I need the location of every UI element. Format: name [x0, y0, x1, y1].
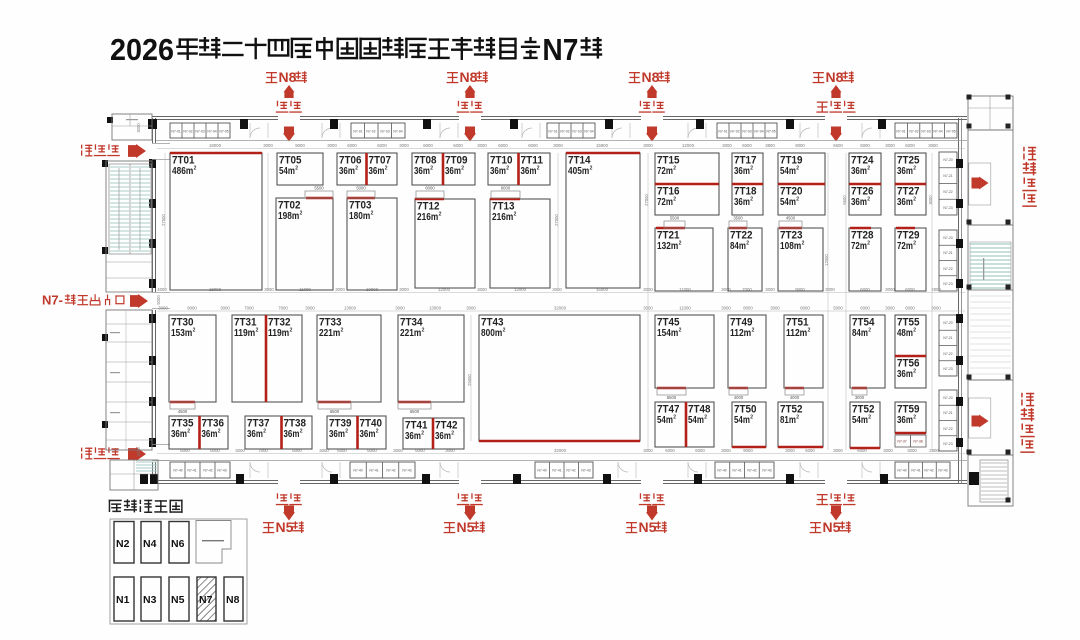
svg-text:3500: 3500: [733, 216, 743, 221]
svg-text:15900: 15900: [596, 143, 609, 148]
svg-text:36m: 36m: [734, 165, 750, 177]
svg-text:7000: 7000: [244, 306, 254, 311]
svg-text:6000: 6000: [423, 143, 433, 148]
svg-text:5000: 5000: [356, 186, 366, 191]
svg-text:N7-05: N7-05: [766, 130, 775, 134]
svg-text:N7-41: N7-41: [732, 469, 741, 473]
svg-text:3000: 3000: [883, 448, 893, 453]
svg-text:54m: 54m: [688, 414, 704, 426]
svg-text:2: 2: [796, 197, 799, 203]
svg-text:N7-41: N7-41: [552, 469, 561, 473]
svg-text:54m: 54m: [780, 165, 796, 177]
svg-text:2: 2: [796, 166, 799, 172]
svg-text:N7-04: N7-04: [207, 130, 216, 134]
svg-text:9000: 9000: [295, 143, 305, 148]
svg-text:6000: 6000: [347, 143, 357, 148]
svg-text:N7-23: N7-23: [943, 206, 952, 210]
svg-text:4000: 4000: [157, 287, 167, 292]
svg-text:3000: 3000: [885, 287, 895, 292]
svg-text:7000: 7000: [278, 306, 288, 311]
svg-text:2: 2: [263, 429, 266, 435]
svg-text:3000: 3000: [553, 143, 563, 148]
svg-text:5500: 5500: [314, 186, 324, 191]
svg-text:4000: 4000: [734, 395, 744, 400]
svg-text:36m: 36m: [445, 165, 461, 177]
svg-text:N7-42: N7-42: [924, 469, 933, 473]
svg-text:3000: 3000: [643, 448, 653, 453]
svg-text:2: 2: [218, 429, 221, 435]
svg-text:36m: 36m: [369, 165, 385, 177]
svg-text:2800: 2800: [929, 448, 939, 453]
svg-text:N7-04: N7-04: [393, 130, 402, 134]
svg-text:3000: 3000: [785, 448, 795, 453]
svg-text:12000: 12000: [824, 254, 829, 266]
svg-text:800m: 800m: [481, 327, 502, 339]
svg-text:36m: 36m: [247, 428, 263, 440]
svg-text:N7-23: N7-23: [943, 367, 952, 371]
svg-text:2: 2: [590, 166, 593, 172]
svg-text:36m: 36m: [851, 165, 867, 177]
svg-text:18000: 18000: [209, 143, 222, 148]
svg-text:3000: 3000: [235, 448, 245, 453]
svg-text:N7-21: N7-21: [943, 251, 952, 255]
svg-text:2: 2: [868, 328, 871, 334]
svg-text:3000: 3000: [477, 287, 487, 292]
svg-text:154m: 154m: [657, 327, 678, 339]
svg-text:3000: 3000: [477, 143, 487, 148]
svg-text:3000: 3000: [158, 306, 168, 311]
svg-text:84m: 84m: [852, 327, 868, 339]
svg-text:180m: 180m: [349, 210, 370, 222]
svg-text:3000: 3000: [833, 448, 843, 453]
svg-text:2: 2: [506, 166, 509, 172]
svg-text:N7-02: N7-02: [366, 130, 375, 134]
svg-text:6000: 6000: [425, 186, 435, 191]
svg-text:3000: 3000: [765, 287, 775, 292]
svg-text:2: 2: [673, 415, 676, 421]
svg-text:36m: 36m: [329, 428, 345, 440]
svg-text:13000: 13000: [344, 306, 357, 311]
svg-text:6000: 6000: [905, 143, 915, 148]
svg-text:N7-03: N7-03: [921, 130, 930, 134]
svg-text:6600: 6600: [833, 143, 843, 148]
svg-text:2026: 2026: [110, 32, 174, 67]
svg-text:2: 2: [256, 328, 259, 334]
svg-text:2: 2: [187, 429, 190, 435]
svg-text:N5: N5: [823, 519, 841, 535]
svg-text:36m: 36m: [435, 430, 451, 442]
svg-text:216m: 216m: [417, 211, 438, 223]
svg-text:36m: 36m: [851, 196, 867, 208]
svg-text:6000: 6000: [498, 143, 508, 148]
svg-text:3000: 3000: [327, 143, 337, 148]
svg-text:221m: 221m: [400, 327, 421, 339]
svg-text:54m: 54m: [279, 165, 295, 177]
svg-text:N4: N4: [143, 538, 157, 550]
svg-text:N7-43: N7-43: [762, 469, 771, 473]
svg-text:N8: N8: [642, 69, 660, 85]
svg-text:2: 2: [345, 429, 348, 435]
svg-text:32000: 32000: [554, 448, 567, 453]
svg-text:9000: 9000: [187, 306, 197, 311]
svg-text:5000: 5000: [156, 295, 161, 305]
svg-text:8000: 8000: [800, 306, 810, 311]
svg-text:N7-20: N7-20: [943, 321, 952, 325]
svg-text:11000: 11000: [679, 306, 691, 311]
svg-text:N5: N5: [171, 594, 185, 606]
svg-text:N7-42: N7-42: [747, 469, 756, 473]
svg-text:112m: 112m: [730, 327, 751, 339]
svg-text:3000: 3000: [552, 287, 562, 292]
svg-text:6000: 6000: [742, 143, 752, 148]
svg-text:N7-41: N7-41: [369, 469, 378, 473]
svg-text:N7: N7: [542, 32, 578, 67]
svg-text:N8: N8: [826, 69, 844, 85]
svg-text:112m: 112m: [786, 327, 807, 339]
svg-text:N7-40: N7-40: [173, 469, 182, 473]
svg-text:2: 2: [295, 166, 298, 172]
svg-text:N7-04: N7-04: [933, 130, 942, 134]
svg-text:221m: 221m: [319, 327, 340, 339]
svg-text:6000: 6000: [665, 448, 675, 453]
svg-text:2: 2: [355, 166, 358, 172]
svg-text:N7-42: N7-42: [386, 469, 395, 473]
svg-text:2: 2: [385, 166, 388, 172]
svg-text:9000: 9000: [795, 143, 805, 148]
svg-text:N7-01: N7-01: [171, 130, 180, 134]
svg-text:36m: 36m: [897, 414, 913, 426]
svg-text:3000: 3000: [928, 143, 938, 148]
svg-text:2: 2: [371, 211, 374, 217]
svg-text:6000: 6000: [528, 143, 538, 148]
svg-text:N7-05: N7-05: [219, 130, 228, 134]
svg-text:3000: 3000: [928, 195, 933, 205]
svg-text:N7-03: N7-03: [195, 130, 204, 134]
svg-text:72m: 72m: [657, 165, 673, 177]
svg-text:153m: 153m: [171, 327, 192, 339]
svg-text:N7-01: N7-01: [896, 130, 905, 134]
svg-text:4500: 4500: [178, 409, 188, 414]
svg-text:N7-41: N7-41: [187, 469, 196, 473]
svg-text:N7-22: N7-22: [943, 352, 952, 356]
svg-text:2: 2: [673, 197, 676, 203]
svg-text:N5: N5: [457, 519, 475, 535]
svg-text:9000: 9000: [743, 448, 753, 453]
svg-text:N7-04: N7-04: [754, 130, 763, 134]
svg-text:N7-42: N7-42: [566, 469, 575, 473]
svg-text:54m: 54m: [734, 414, 750, 426]
svg-text:2: 2: [913, 197, 916, 203]
svg-text:N8: N8: [279, 69, 297, 85]
svg-text:N7: N7: [199, 594, 213, 606]
svg-text:N7-: N7-: [42, 292, 63, 307]
svg-text:6500: 6500: [330, 409, 340, 414]
svg-text:3000: 3000: [722, 143, 732, 148]
svg-text:2: 2: [796, 415, 799, 421]
svg-text:8000: 8000: [743, 306, 753, 311]
svg-text:36m: 36m: [734, 196, 750, 208]
svg-text:2: 2: [430, 166, 433, 172]
svg-text:3000: 3000: [393, 448, 403, 453]
svg-text:36m: 36m: [202, 428, 218, 440]
svg-text:N7-03: N7-03: [572, 130, 581, 134]
svg-text:48m: 48m: [897, 327, 913, 339]
svg-text:108m: 108m: [780, 240, 801, 252]
svg-text:3000: 3000: [399, 143, 409, 148]
svg-text:N7-01: N7-01: [353, 130, 362, 134]
svg-text:N7-40: N7-40: [537, 469, 546, 473]
svg-text:12000: 12000: [682, 143, 695, 148]
svg-text:N7-02: N7-02: [730, 130, 739, 134]
svg-text:2: 2: [300, 211, 303, 217]
svg-text:N2: N2: [116, 538, 130, 550]
svg-text:3000: 3000: [399, 287, 409, 292]
svg-text:25000: 25000: [467, 374, 472, 386]
svg-text:36m: 36m: [171, 428, 187, 440]
svg-text:N7-40: N7-40: [717, 469, 726, 473]
svg-text:2: 2: [704, 415, 707, 421]
svg-text:N7-22: N7-22: [943, 427, 952, 431]
svg-text:216m: 216m: [492, 211, 513, 223]
svg-text:N7-38: N7-38: [913, 440, 922, 444]
svg-text:3000: 3000: [885, 143, 895, 148]
svg-text:N7-20: N7-20: [943, 236, 952, 240]
svg-text:N7-01: N7-01: [548, 130, 557, 134]
svg-text:2: 2: [439, 212, 442, 218]
svg-text:2: 2: [503, 328, 506, 334]
svg-text:119m: 119m: [268, 327, 289, 339]
svg-text:4000: 4000: [790, 395, 800, 400]
svg-text:3000: 3000: [305, 306, 315, 311]
svg-text:2: 2: [750, 415, 753, 421]
svg-text:N5: N5: [639, 519, 657, 535]
svg-text:2: 2: [750, 197, 753, 203]
svg-text:2: 2: [376, 429, 379, 435]
svg-text:2: 2: [913, 415, 916, 421]
svg-text:2: 2: [679, 241, 682, 247]
svg-text:36m: 36m: [897, 196, 913, 208]
svg-text:36m: 36m: [490, 165, 506, 177]
svg-text:N7-23: N7-23: [943, 442, 952, 446]
svg-text:N7-21: N7-21: [943, 411, 952, 415]
svg-text:3000: 3000: [643, 306, 653, 311]
svg-text:36m: 36m: [360, 428, 376, 440]
svg-text:36m: 36m: [414, 165, 430, 177]
svg-text:54m: 54m: [780, 196, 796, 208]
svg-text:N7-02: N7-02: [909, 130, 918, 134]
svg-text:2: 2: [752, 328, 755, 334]
svg-text:2: 2: [808, 328, 811, 334]
svg-text:13000: 13000: [429, 306, 442, 311]
svg-text:3000: 3000: [466, 306, 476, 311]
svg-text:36m: 36m: [339, 165, 355, 177]
svg-text:2: 2: [913, 328, 916, 334]
svg-text:N7-01: N7-01: [718, 130, 727, 134]
svg-text:6600: 6600: [842, 195, 847, 205]
svg-text:72m: 72m: [897, 240, 913, 252]
svg-text:3000: 3000: [721, 448, 731, 453]
svg-text:N7-23: N7-23: [943, 282, 952, 286]
svg-text:N5: N5: [276, 519, 294, 535]
svg-text:2: 2: [300, 429, 303, 435]
svg-text:N7-43: N7-43: [402, 469, 411, 473]
svg-text:2: 2: [537, 166, 540, 172]
svg-text:2: 2: [802, 241, 805, 247]
svg-text:132m: 132m: [657, 240, 678, 252]
svg-text:6000: 6000: [905, 306, 915, 311]
svg-text:6000: 6000: [860, 143, 870, 148]
svg-text:27000: 27000: [161, 214, 166, 226]
svg-text:54m: 54m: [657, 414, 673, 426]
svg-text:3000: 3000: [220, 306, 230, 311]
svg-text:36m: 36m: [897, 368, 913, 380]
svg-text:2: 2: [193, 328, 196, 334]
svg-text:N7-40: N7-40: [897, 469, 906, 473]
svg-text:36m: 36m: [284, 428, 300, 440]
svg-text:32000: 32000: [554, 306, 567, 311]
svg-text:3000: 3000: [264, 287, 274, 292]
svg-text:6000: 6000: [805, 448, 815, 453]
svg-text:6000: 6000: [860, 306, 870, 311]
svg-text:6000: 6000: [453, 143, 463, 148]
svg-text:119m: 119m: [234, 327, 255, 339]
svg-text:3000: 3000: [770, 306, 780, 311]
svg-text:2: 2: [514, 212, 517, 218]
svg-text:N7-21: N7-21: [943, 336, 952, 340]
svg-text:N7-03: N7-03: [380, 130, 389, 134]
svg-text:3000: 3000: [931, 306, 941, 311]
svg-text:3000: 3000: [136, 123, 141, 133]
svg-text:72m: 72m: [657, 196, 673, 208]
svg-text:36m: 36m: [897, 165, 913, 177]
svg-text:N7-21: N7-21: [943, 174, 952, 178]
svg-text:2: 2: [913, 241, 916, 247]
svg-text:5500: 5500: [667, 395, 677, 400]
svg-text:54m: 54m: [852, 414, 868, 426]
svg-text:27000: 27000: [554, 214, 559, 226]
svg-text:2: 2: [451, 431, 454, 437]
svg-text:27000: 27000: [644, 194, 649, 206]
svg-text:6000: 6000: [501, 186, 511, 191]
svg-text:3000: 3000: [643, 287, 653, 292]
svg-text:486m: 486m: [172, 165, 193, 177]
svg-text:N7-04: N7-04: [584, 130, 593, 134]
svg-text:2: 2: [913, 166, 916, 172]
svg-text:2: 2: [746, 241, 749, 247]
svg-text:N7-22: N7-22: [943, 190, 952, 194]
svg-text:N7-20: N7-20: [943, 158, 952, 162]
svg-text:N7-02: N7-02: [560, 130, 569, 134]
svg-text:2800: 2800: [931, 287, 941, 292]
svg-text:N7-02: N7-02: [183, 130, 192, 134]
svg-text:6000: 6000: [695, 448, 705, 453]
svg-text:2: 2: [194, 166, 197, 172]
svg-text:405m: 405m: [568, 165, 589, 177]
svg-text:N7-22: N7-22: [943, 267, 952, 271]
svg-text:N7-43: N7-43: [938, 469, 947, 473]
svg-text:N7-05: N7-05: [946, 130, 955, 134]
svg-text:3800: 3800: [765, 143, 775, 148]
svg-text:2: 2: [461, 166, 464, 172]
svg-text:N7-03: N7-03: [742, 130, 751, 134]
svg-text:6000: 6000: [377, 143, 387, 148]
svg-text:3000: 3000: [825, 287, 835, 292]
svg-text:3000: 3000: [395, 306, 405, 311]
svg-text:N3: N3: [143, 594, 157, 606]
svg-text:2: 2: [750, 166, 753, 172]
svg-text:N6: N6: [171, 538, 185, 550]
svg-text:6500: 6500: [410, 409, 420, 414]
svg-text:N7-41: N7-41: [911, 469, 920, 473]
svg-text:3000: 3000: [643, 143, 653, 148]
svg-text:84m: 84m: [730, 240, 746, 252]
svg-text:3000: 3000: [907, 448, 917, 453]
svg-text:2: 2: [913, 369, 916, 375]
svg-text:5500: 5500: [670, 216, 680, 221]
svg-text:N7-42: N7-42: [203, 469, 212, 473]
svg-text:3000: 3000: [136, 447, 141, 457]
svg-text:N7-37: N7-37: [897, 440, 906, 444]
svg-text:3000: 3000: [263, 143, 273, 148]
svg-text:2: 2: [421, 431, 424, 437]
svg-text:N7-43: N7-43: [217, 469, 226, 473]
svg-text:2: 2: [868, 415, 871, 421]
svg-text:198m: 198m: [278, 210, 299, 222]
svg-text:2: 2: [422, 328, 425, 334]
svg-text:2: 2: [867, 166, 870, 172]
svg-text:3000: 3000: [855, 395, 865, 400]
svg-text:2: 2: [341, 328, 344, 334]
svg-text:36m: 36m: [521, 165, 537, 177]
svg-text:4500: 4500: [786, 216, 796, 221]
svg-text:2: 2: [673, 166, 676, 172]
svg-text:2: 2: [867, 197, 870, 203]
svg-text:N7-20: N7-20: [943, 396, 952, 400]
svg-text:N7-40: N7-40: [353, 469, 362, 473]
svg-text:2: 2: [867, 241, 870, 247]
svg-text:2: 2: [290, 328, 293, 334]
svg-text:N7-43: N7-43: [581, 469, 590, 473]
svg-text:2: 2: [679, 328, 682, 334]
svg-text:81m: 81m: [780, 414, 796, 426]
svg-text:3000: 3000: [885, 306, 895, 311]
svg-text:N8: N8: [226, 594, 240, 606]
svg-text:3000: 3000: [335, 287, 345, 292]
svg-text:N8: N8: [460, 69, 478, 85]
svg-text:72m: 72m: [851, 240, 867, 252]
svg-text:5000: 5000: [833, 306, 843, 311]
svg-text:N1: N1: [116, 594, 130, 606]
svg-text:36m: 36m: [405, 430, 421, 442]
svg-text:3000: 3000: [721, 306, 731, 311]
